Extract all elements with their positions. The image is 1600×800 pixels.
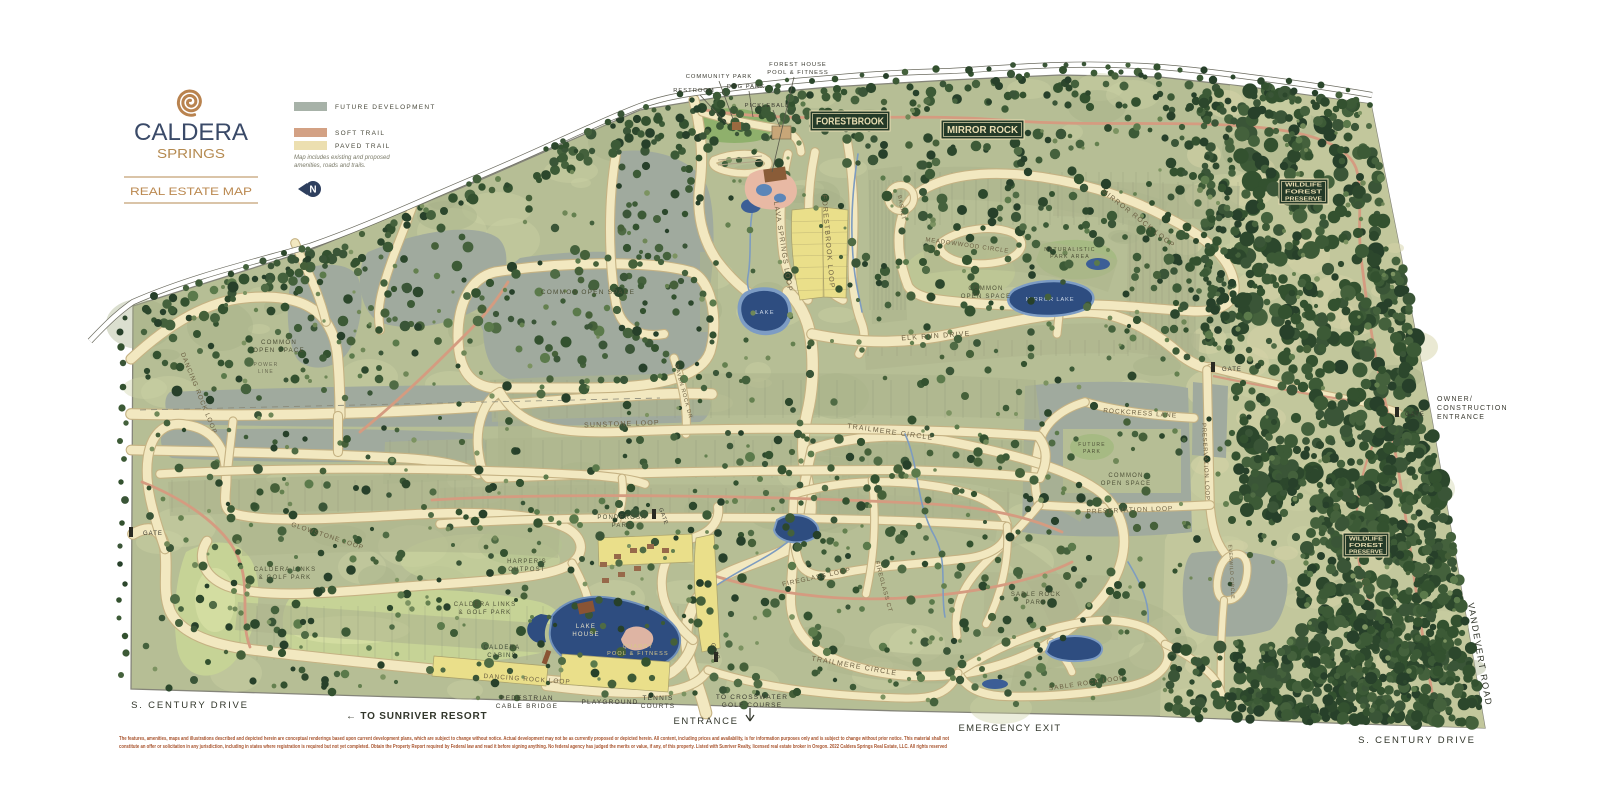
svg-text:SABLE ROCK: SABLE ROCK	[1011, 592, 1061, 598]
svg-text:GATE: GATE	[143, 531, 163, 537]
svg-text:PARK: PARK	[612, 523, 633, 529]
svg-text:PICKLEBALL: PICKLEBALL	[745, 103, 790, 109]
svg-text:MIRROR ROCK: MIRROR ROCK	[947, 125, 1019, 136]
svg-text:FOREST: FOREST	[1349, 543, 1384, 549]
svg-text:COMMON: COMMON	[261, 339, 297, 346]
svg-text:PARK: PARK	[1026, 600, 1047, 606]
svg-text:POWER: POWER	[254, 362, 279, 368]
svg-text:LAKE: LAKE	[576, 624, 596, 630]
svg-text:GATE: GATE	[1222, 367, 1242, 373]
svg-text:TENNIS: TENNIS	[642, 695, 673, 702]
svg-text:DOG PARK: DOG PARK	[727, 84, 765, 90]
svg-text:PLAYGROUND: PLAYGROUND	[581, 699, 638, 706]
svg-text:S. CENTURY DRIVE: S. CENTURY DRIVE	[1358, 735, 1476, 746]
svg-text:LAKE: LAKE	[755, 310, 775, 316]
svg-text:COMMUNITY PARK: COMMUNITY PARK	[686, 74, 753, 80]
svg-text:WILDLIFE: WILDLIFE	[1349, 536, 1383, 542]
svg-text:POOL & FITNESS: POOL & FITNESS	[607, 651, 669, 657]
svg-text:RESTROOM: RESTROOM	[673, 88, 715, 94]
svg-text:OUTPOST: OUTPOST	[508, 567, 545, 573]
svg-text:constitute an offer or solicit: constitute an offer or solicitation in a…	[119, 744, 947, 750]
svg-text:PARK: PARK	[1083, 449, 1101, 455]
svg-text:HOUSE: HOUSE	[572, 632, 599, 638]
svg-text:PONDEROSA: PONDEROSA	[597, 515, 646, 521]
svg-text:ENTRANCE: ENTRANCE	[1437, 414, 1485, 421]
svg-text:OPEN SPACE: OPEN SPACE	[961, 294, 1012, 300]
svg-text:LINE: LINE	[258, 369, 274, 375]
svg-text:CABLE BRIDGE: CABLE BRIDGE	[496, 703, 558, 710]
svg-text:HARPER'S: HARPER'S	[507, 559, 547, 565]
svg-text:OWNER/: OWNER/	[1437, 396, 1473, 403]
svg-text:CALDERA LINKS: CALDERA LINKS	[454, 602, 517, 608]
svg-text:GOLF COURSE: GOLF COURSE	[722, 702, 783, 709]
svg-text:ENTRANCE: ENTRANCE	[673, 716, 738, 727]
svg-text:EMERGENCY EXIT: EMERGENCY EXIT	[958, 723, 1061, 734]
svg-text:PRESERVE: PRESERVE	[1285, 196, 1322, 202]
svg-text:FUTURE: FUTURE	[1078, 442, 1105, 448]
svg-text:QUARRY: QUARRY	[623, 644, 654, 650]
svg-text:WILDLIFE: WILDLIFE	[1285, 183, 1322, 189]
svg-text:FOREST: FOREST	[1285, 190, 1323, 196]
svg-text:SOFT TRAIL: SOFT TRAIL	[335, 130, 385, 137]
svg-text:COMMON: COMMON	[968, 286, 1003, 292]
svg-text:PAVED TRAIL: PAVED TRAIL	[335, 143, 390, 150]
svg-text:COMMON: COMMON	[1108, 473, 1143, 479]
svg-text:FOREST HOUSE: FOREST HOUSE	[769, 62, 827, 68]
svg-text:PEDESTRIAN: PEDESTRIAN	[500, 695, 554, 702]
svg-text:CABINS: CABINS	[487, 653, 517, 659]
svg-text:GATE: GATE	[1405, 412, 1425, 418]
svg-text:& GOLF PARK: & GOLF PARK	[459, 610, 512, 616]
svg-text:FUTURE DEVELOPMENT: FUTURE DEVELOPMENT	[335, 104, 436, 111]
svg-text:COMMON OPEN SPACE: COMMON OPEN SPACE	[541, 289, 635, 296]
svg-text:REAL ESTATE MAP: REAL ESTATE MAP	[130, 186, 252, 198]
svg-text:FORESTBROOK: FORESTBROOK	[816, 117, 885, 128]
svg-text:CALDERA: CALDERA	[484, 645, 521, 651]
svg-text:CALDERA LINKS: CALDERA LINKS	[254, 567, 317, 573]
svg-text:NATURALISTIC: NATURALISTIC	[1044, 247, 1095, 253]
svg-text:CONSTRUCTION: CONSTRUCTION	[1437, 405, 1508, 412]
svg-text:Map includes existing and prop: Map includes existing and proposed	[294, 155, 390, 161]
svg-text:& GOLF PARK: & GOLF PARK	[259, 575, 312, 581]
svg-text:S. CENTURY DRIVE: S. CENTURY DRIVE	[131, 700, 249, 711]
svg-text:PARK AREA: PARK AREA	[1050, 254, 1090, 260]
svg-text:← TO SUNRIVER RESORT: ← TO SUNRIVER RESORT	[346, 711, 487, 722]
svg-text:OPEN SPACE: OPEN SPACE	[253, 347, 305, 354]
svg-text:N: N	[309, 185, 316, 196]
svg-text:The features, amenities, maps: The features, amenities, maps and illust…	[119, 736, 949, 742]
svg-text:POOL & FITNESS: POOL & FITNESS	[767, 70, 828, 76]
svg-text:amenities, roads and trails.: amenities, roads and trails.	[294, 163, 366, 169]
svg-text:TO CROSSWATER: TO CROSSWATER	[716, 694, 788, 701]
svg-text:PRESERVE: PRESERVE	[1349, 550, 1383, 556]
svg-text:SPRINGS: SPRINGS	[157, 146, 225, 161]
svg-text:COURTS: COURTS	[641, 703, 676, 710]
svg-text:OPEN SPACE: OPEN SPACE	[1101, 481, 1152, 487]
svg-text:CALDERA: CALDERA	[134, 119, 248, 146]
